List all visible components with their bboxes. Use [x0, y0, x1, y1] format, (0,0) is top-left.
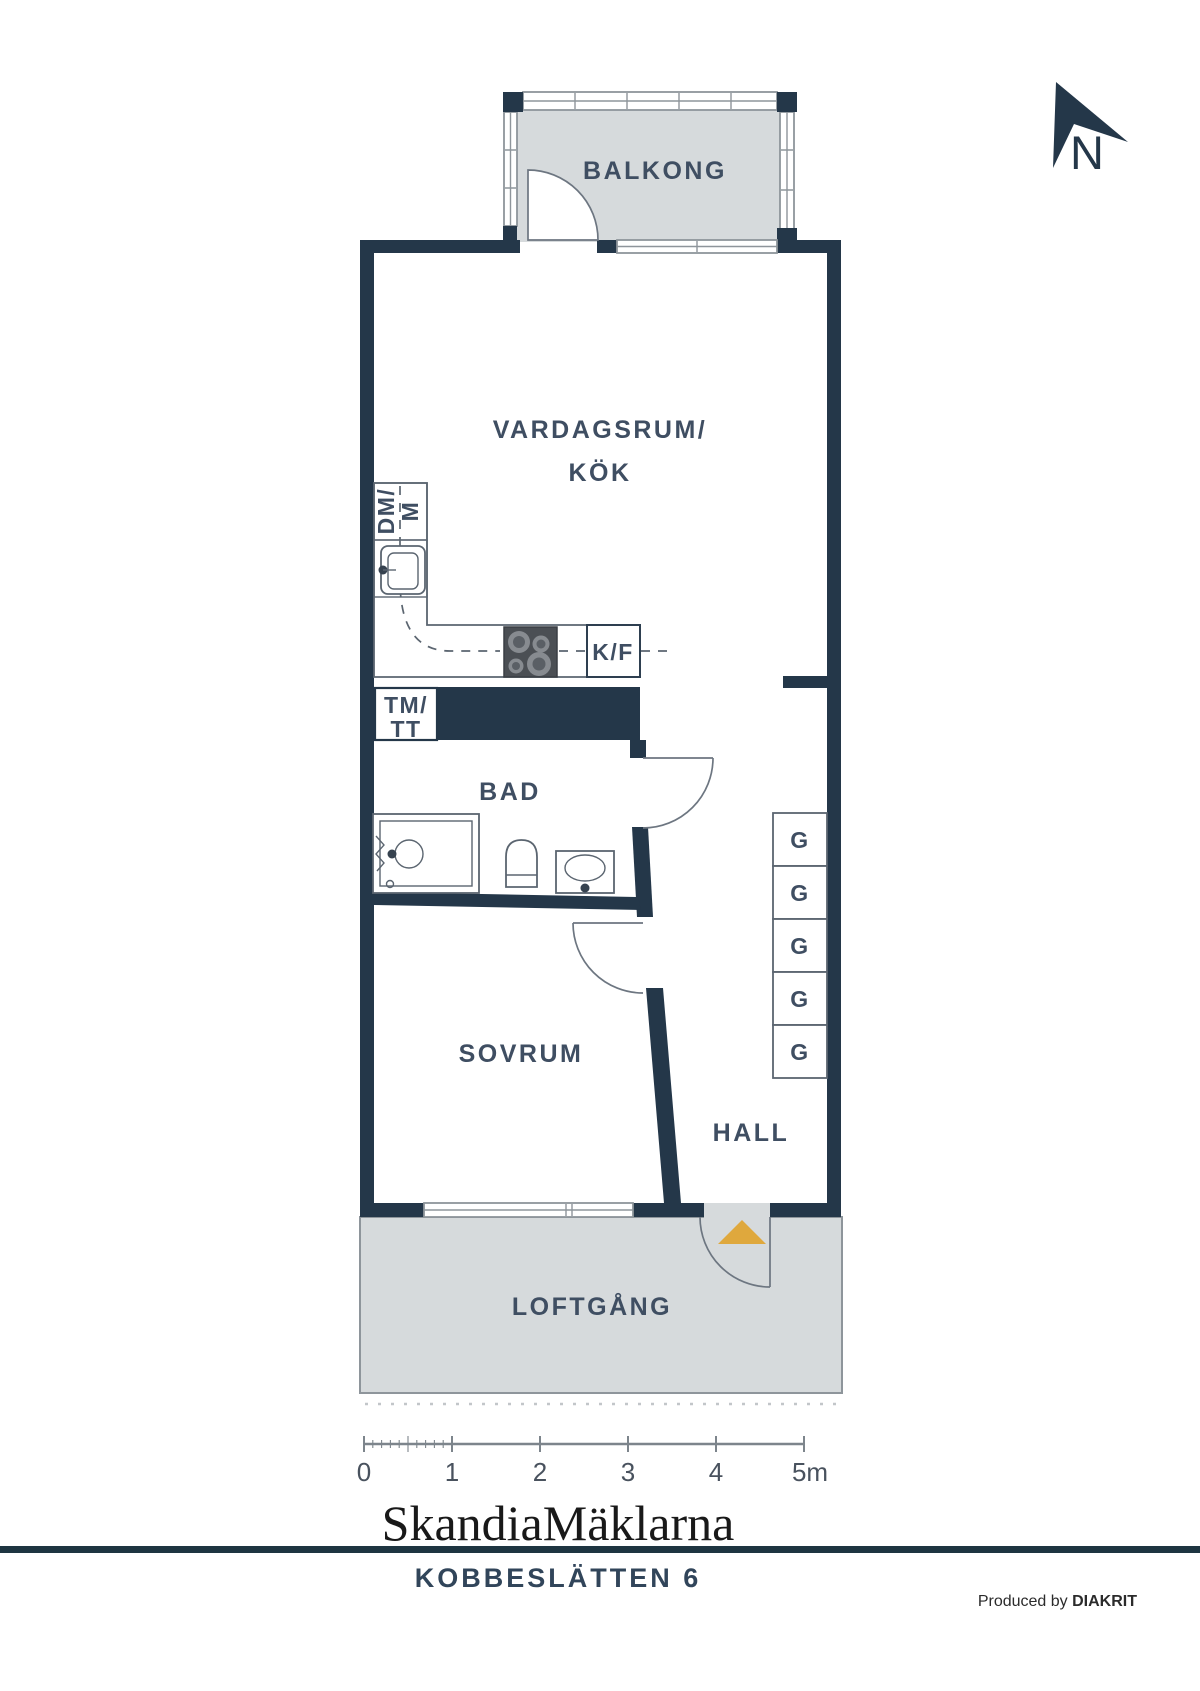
- kitchen-sink: [379, 546, 426, 594]
- room-label-kitchen: KÖK: [568, 458, 631, 487]
- bottom-wall-mid: [633, 1203, 704, 1217]
- fridge-freezer-label: K/F: [592, 639, 634, 665]
- divider-rule: [0, 1546, 1200, 1553]
- wardrobe-label: G: [790, 880, 809, 906]
- scale-tick-label: 2: [533, 1457, 547, 1487]
- north-label: N: [1070, 126, 1104, 179]
- wardrobe-label: G: [790, 1039, 809, 1065]
- room-label-bathroom: BAD: [479, 778, 541, 806]
- background: [0, 0, 1200, 1691]
- room-label-walkway: LOFTGÅNG: [512, 1292, 672, 1321]
- right-wall: [827, 240, 841, 1217]
- scale-tick-label: 0: [357, 1457, 371, 1487]
- bath-door-jamb: [630, 740, 646, 758]
- scale-tick-label: 5m: [792, 1457, 828, 1487]
- wardrobe-label: G: [790, 827, 809, 853]
- top-wall-left: [360, 240, 520, 253]
- scale-tick-label: 1: [445, 1457, 459, 1487]
- balcony-door-jamb: [597, 240, 617, 253]
- left-wall: [360, 240, 374, 1217]
- shower: [373, 814, 479, 893]
- address: KOBBESLÄTTEN 6: [415, 1563, 702, 1593]
- scale-tick-label: 4: [709, 1457, 723, 1487]
- room-label-balcony: BALKONG: [583, 157, 727, 185]
- room-label-bedroom: SOVRUM: [459, 1040, 584, 1068]
- room-label-hall: HALL: [713, 1119, 790, 1147]
- room-label-living: VARDAGSRUM/: [493, 416, 708, 444]
- wardrobe-label: G: [790, 933, 809, 959]
- wardrobes: G G G G G: [773, 813, 827, 1078]
- wardrobe-label: G: [790, 986, 809, 1012]
- hall-wall-stub: [783, 676, 827, 688]
- bottom-wall-left: [360, 1203, 424, 1217]
- producer-credit: Produced by DIAKRIT: [978, 1593, 1137, 1610]
- washer-label: TM/TT: [384, 692, 428, 742]
- toilet: [506, 840, 537, 887]
- scale-tick-label: 3: [621, 1457, 635, 1487]
- entry-opening-floor: [704, 1203, 770, 1218]
- bottom-wall-right: [770, 1203, 841, 1217]
- bathroom-sink: [556, 851, 614, 893]
- brand-logo: SkandiaMäklarna: [382, 1495, 735, 1551]
- stove: [504, 627, 557, 677]
- floor-plan-page: G G G G G BALKONG VARDAGSRUM/ KÖK BAD SO…: [0, 0, 1200, 1691]
- floor-plan: G G G G G BALKONG VARDAGSRUM/ KÖK BAD SO…: [0, 0, 1200, 1691]
